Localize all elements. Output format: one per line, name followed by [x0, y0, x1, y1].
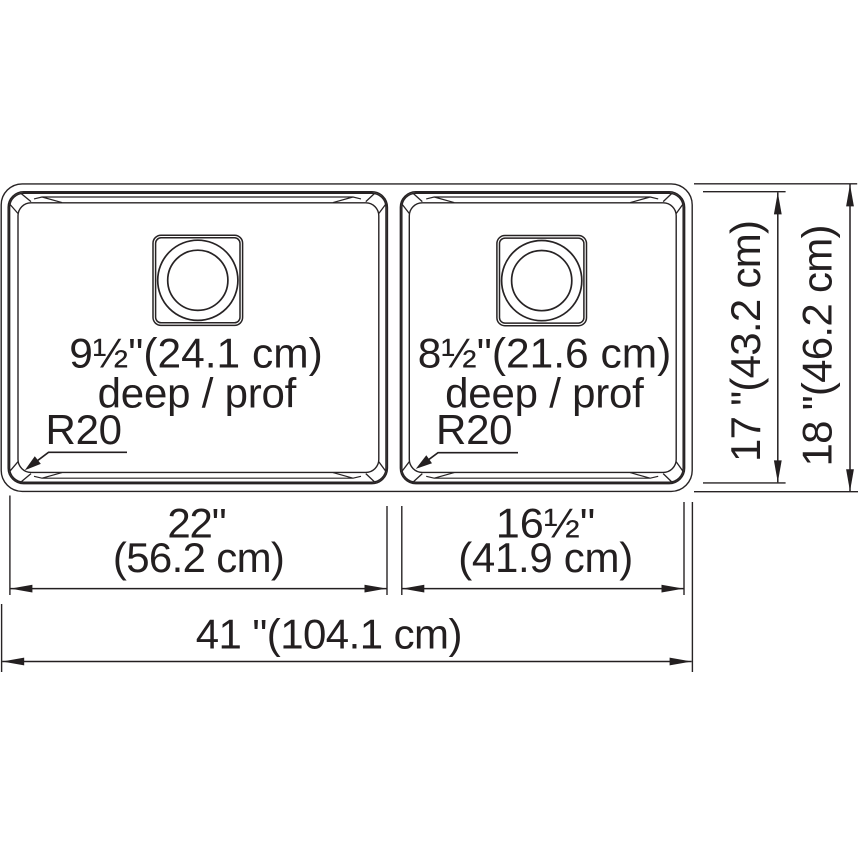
svg-text:deep / prof: deep / prof	[98, 370, 297, 417]
svg-text:41 "(104.1 cm): 41 "(104.1 cm)	[196, 610, 463, 657]
svg-text:R20: R20	[436, 406, 513, 453]
svg-text:(41.9 cm): (41.9 cm)	[458, 534, 633, 581]
svg-text:18 "(46.2 cm): 18 "(46.2 cm)	[794, 225, 841, 467]
svg-text:R20: R20	[46, 406, 123, 453]
svg-text:17 "(43.2 cm): 17 "(43.2 cm)	[722, 220, 769, 462]
svg-text:(56.2 cm): (56.2 cm)	[113, 534, 285, 581]
